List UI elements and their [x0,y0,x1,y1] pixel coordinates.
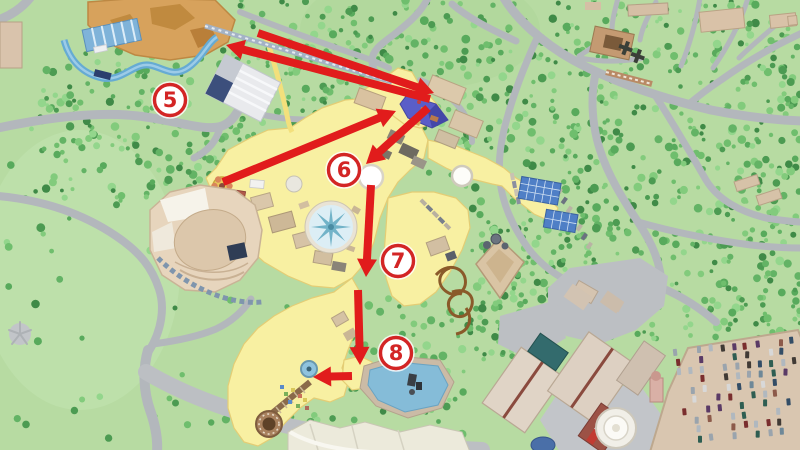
route-arrow-blue-building-to-waterride [226,40,430,99]
svg-text:7: 7 [391,249,406,273]
route-marker-6: 6 [327,153,362,188]
route-arrow-plaza-to-blue-building [223,109,396,182]
route-arrow-seven-to-eight [350,290,370,365]
theme-park-map: 5678 [0,0,800,450]
svg-text:6: 6 [337,158,352,182]
route-marker-8: 8 [379,336,414,371]
svg-text:8: 8 [389,341,404,365]
route-overlay: 5678 [0,0,800,450]
route-arrow-waterride-to-blue-building [258,33,434,97]
route-marker-5: 5 [153,83,188,118]
route-arrow-eight-to-fountain [313,367,352,387]
route-marker-7: 7 [381,244,416,279]
route-arrow-six-to-seven [357,185,377,277]
svg-text:5: 5 [163,88,178,112]
